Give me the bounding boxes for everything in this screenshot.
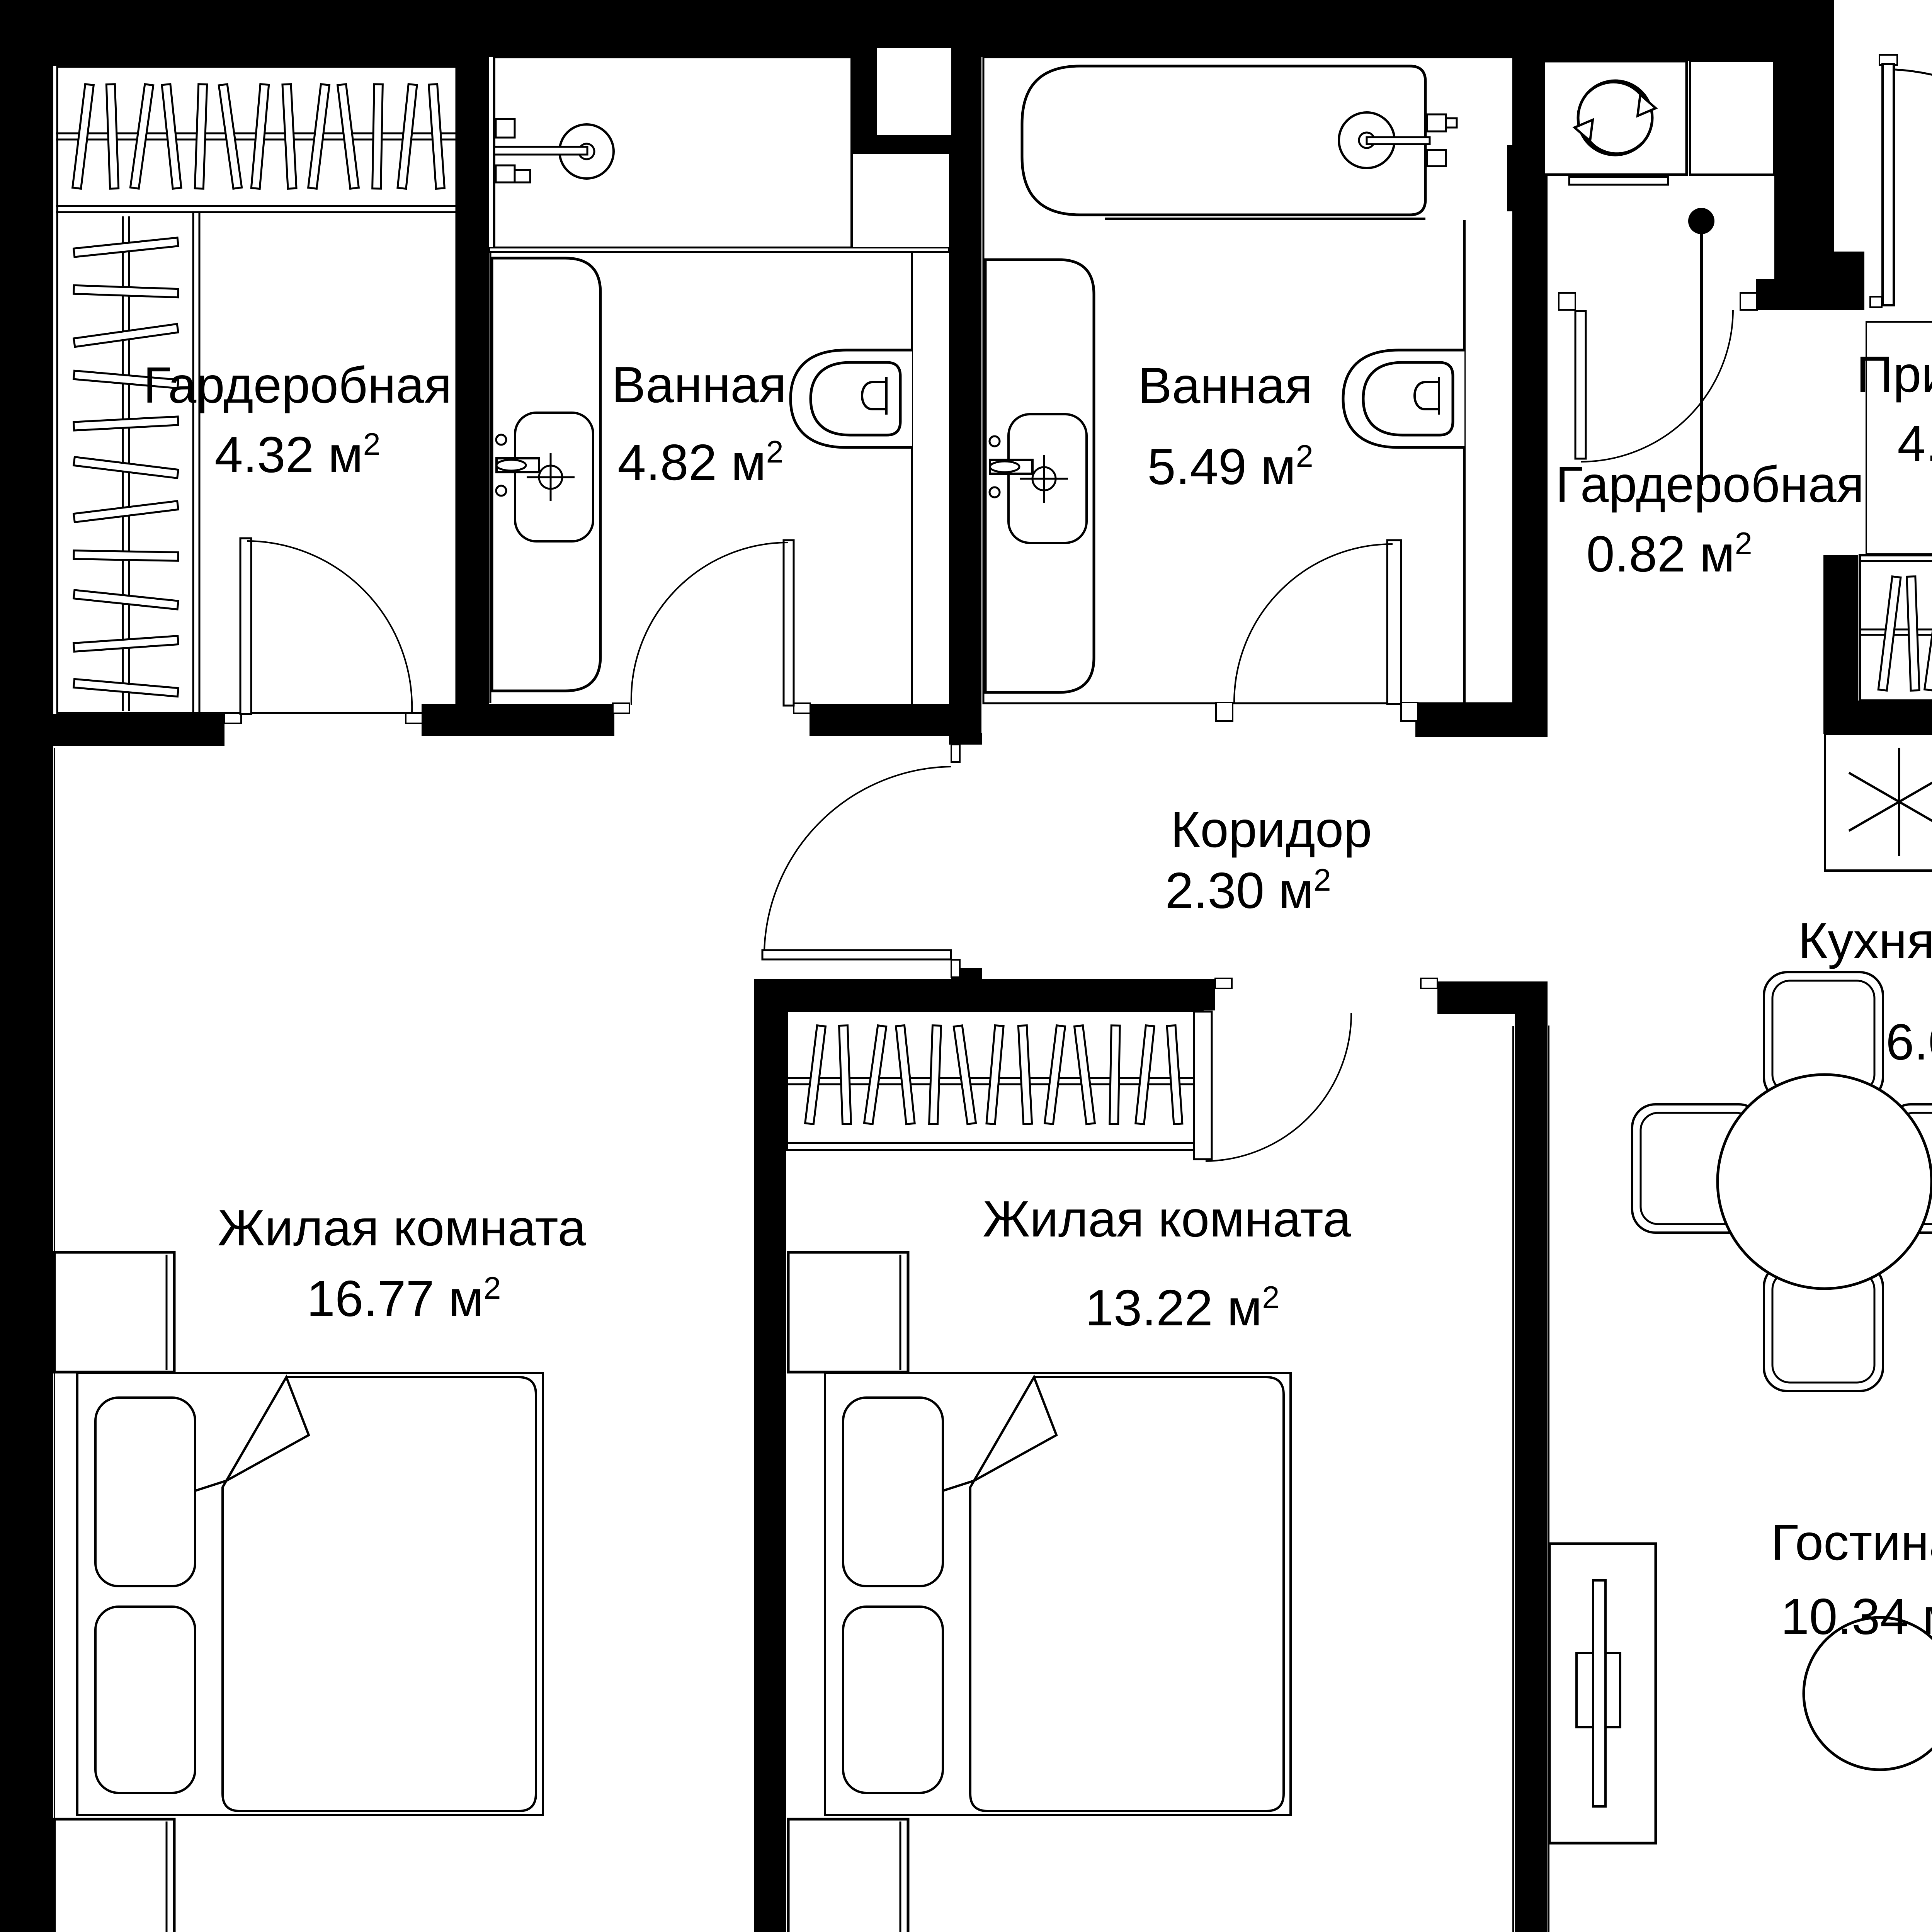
svg-text:2.30 м2: 2.30 м2 bbox=[1165, 862, 1331, 919]
svg-text:16.77 м2: 16.77 м2 bbox=[307, 1270, 501, 1327]
svg-text:13.22 м2: 13.22 м2 bbox=[1085, 1279, 1280, 1336]
svg-text:Ванная: Ванная bbox=[612, 356, 786, 413]
svg-text:Прихожая: Прихожая bbox=[1856, 346, 1932, 403]
svg-text:4.82 м2: 4.82 м2 bbox=[617, 434, 783, 491]
svg-text:Гостиная: Гостиная bbox=[1771, 1514, 1932, 1571]
svg-text:Кухня-ниша: Кухня-ниша bbox=[1798, 912, 1932, 969]
svg-text:4.32 м2: 4.32 м2 bbox=[214, 426, 380, 483]
svg-text:Коридор: Коридор bbox=[1170, 801, 1372, 858]
svg-text:0.82 м2: 0.82 м2 bbox=[1586, 526, 1752, 582]
svg-text:5.49 м2: 5.49 м2 bbox=[1147, 438, 1313, 495]
svg-text:Ванная: Ванная bbox=[1138, 357, 1313, 414]
svg-text:Гардеробная: Гардеробная bbox=[143, 357, 452, 413]
svg-text:10.34 м2: 10.34 м2 bbox=[1781, 1588, 1932, 1645]
svg-text:Жилая комната: Жилая комната bbox=[218, 1199, 586, 1256]
svg-text:6.02 м2: 6.02 м2 bbox=[1886, 1014, 1932, 1070]
svg-text:Жилая комната: Жилая комната bbox=[983, 1190, 1351, 1247]
svg-text:4.30 м2: 4.30 м2 bbox=[1897, 415, 1932, 472]
svg-text:Гардеробная: Гардеробная bbox=[1556, 456, 1864, 513]
